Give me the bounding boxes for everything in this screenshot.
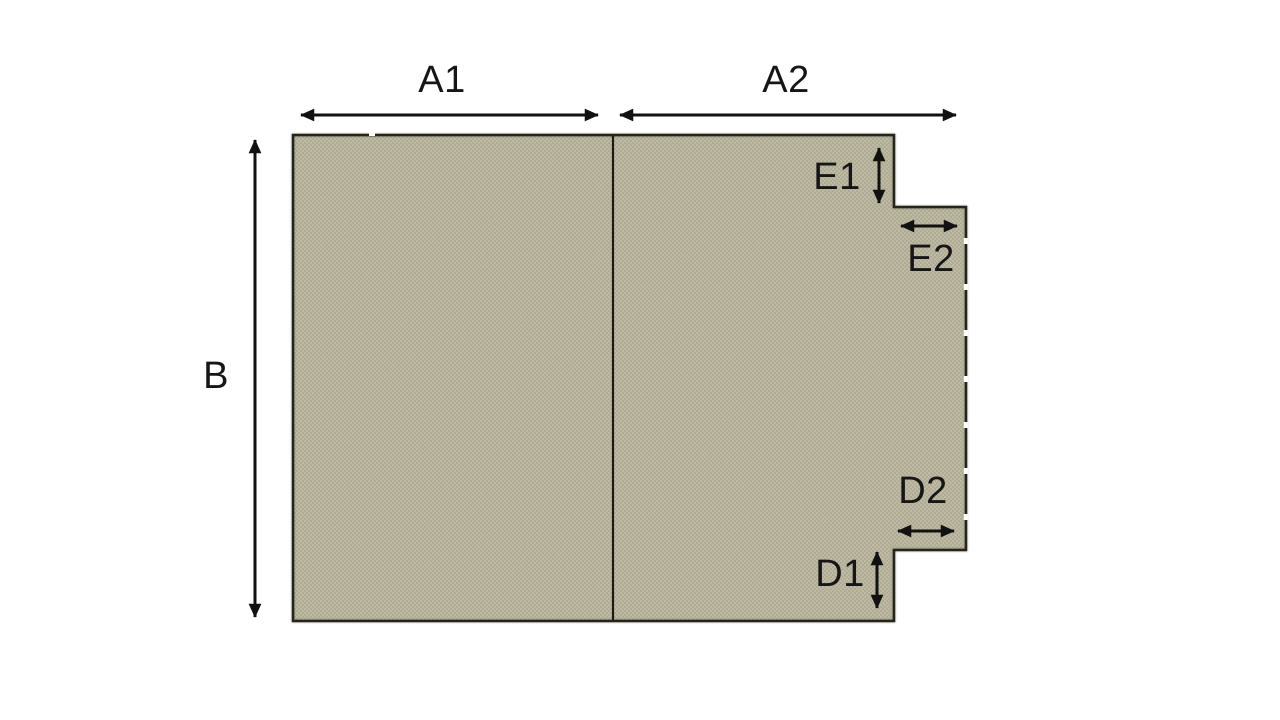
dim-label-e2: E2 (907, 240, 954, 278)
fabric-noise-overlay (290, 132, 970, 624)
dim-label-b: B (203, 357, 229, 395)
fabric-panel-diagram-svg (0, 0, 1280, 720)
top-edge-seam-notch (369, 132, 375, 136)
dim-label-a2: A2 (762, 61, 809, 99)
dim-label-d1: D1 (815, 555, 865, 593)
dim-label-e1: E1 (813, 158, 860, 196)
dim-label-d2: D2 (898, 472, 948, 510)
dim-label-a1: A1 (418, 61, 465, 99)
fabric-panel-shape (290, 132, 970, 624)
diagram-canvas: A1 A2 B E1 E2 D2 D1 (0, 0, 1280, 720)
